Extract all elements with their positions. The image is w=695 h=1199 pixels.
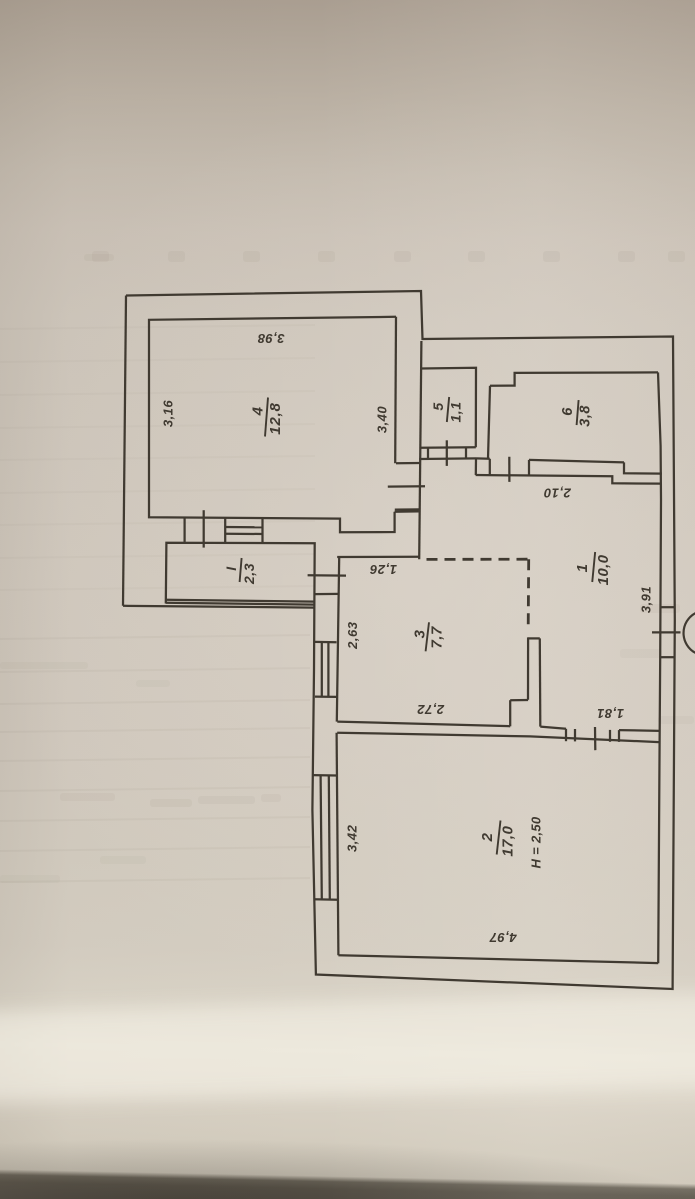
svg-text:7,7: 7,7 [429,626,446,649]
svg-text:1: 1 [574,564,591,573]
svg-text:2,3: 2,3 [241,563,257,585]
svg-text:3,8: 3,8 [577,405,593,427]
svg-text:10,0: 10,0 [595,554,612,585]
svg-text:12,8: 12,8 [267,402,284,434]
svg-text:2,72: 2,72 [417,702,446,717]
svg-text:3,16: 3,16 [161,400,176,428]
svg-text:1,26: 1,26 [369,562,397,577]
svg-text:4,97: 4,97 [489,930,518,945]
svg-text:5: 5 [430,402,446,410]
svg-text:2,63: 2,63 [345,621,360,650]
svg-text:1,1: 1,1 [447,402,463,423]
svg-text:H = 2,50: H = 2,50 [529,816,544,868]
svg-text:4: 4 [250,406,267,416]
svg-text:3,40: 3,40 [375,406,390,434]
svg-text:6: 6 [560,407,576,416]
svg-text:I: I [223,566,239,571]
svg-text:3,42: 3,42 [345,824,360,852]
svg-text:3: 3 [411,629,428,638]
svg-text:17,0: 17,0 [500,826,517,857]
svg-text:2,10: 2,10 [543,486,572,501]
svg-text:2: 2 [479,832,496,842]
svg-text:3,98: 3,98 [257,331,285,346]
svg-text:1,81: 1,81 [597,706,624,721]
svg-text:3,91: 3,91 [639,586,654,613]
